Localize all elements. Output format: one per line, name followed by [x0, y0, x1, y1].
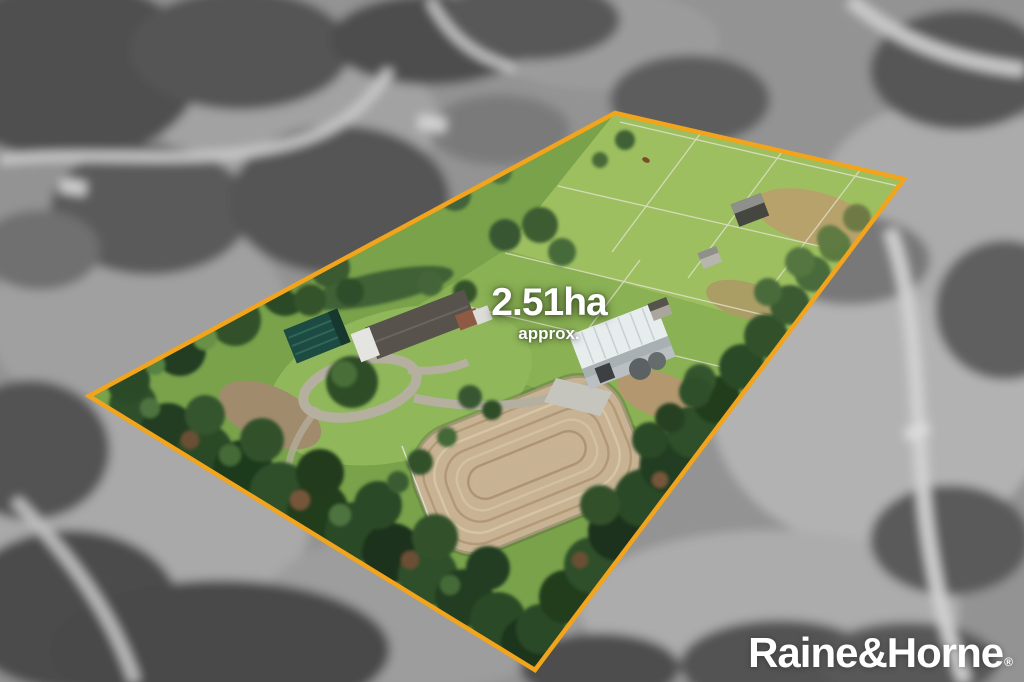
- aerial-photo: [0, 0, 1024, 682]
- brand-logo: Raine&Horne®: [748, 632, 1012, 674]
- brand-logo-text: Raine&Horne: [748, 629, 1003, 676]
- registered-mark-icon: ®: [1004, 655, 1012, 669]
- listing-photo: 2.51ha approx. Raine&Horne®: [0, 0, 1024, 682]
